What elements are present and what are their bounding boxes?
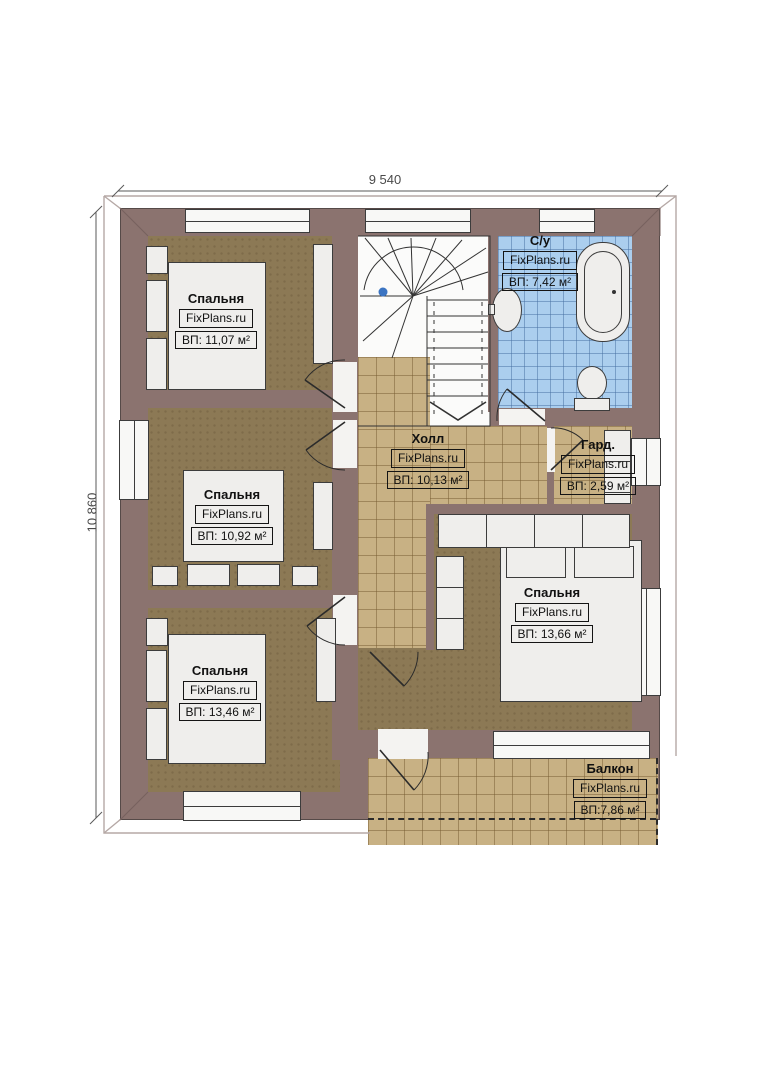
interior-wall	[426, 514, 434, 650]
room-label-bedroom-2: Спальня FixPlans.ru ВП: 10,92 м²	[176, 488, 288, 545]
room-area-label: ВП: 13,66 м²	[511, 625, 594, 643]
bathtub-drain-dot	[612, 290, 616, 294]
room-area-label: ВП: 11,07 м²	[175, 331, 257, 349]
door-opening-balcony	[378, 729, 428, 759]
interior-wall	[426, 504, 648, 514]
door-opening	[499, 409, 545, 425]
room-label-bathroom: С/у FixPlans.ru ВП: 7,42 м²	[492, 234, 588, 291]
window	[119, 420, 149, 500]
window	[493, 731, 650, 759]
pillow-symbol	[237, 564, 280, 586]
nightstand-symbol	[146, 618, 168, 646]
room-label-bedroom-3: Спальня FixPlans.ru ВП: 13,46 м²	[164, 664, 276, 721]
toilet-bowl-symbol	[577, 366, 607, 400]
room-name: С/у	[530, 234, 550, 248]
wardrobe-symbol	[316, 618, 336, 702]
room-name: Холл	[412, 432, 445, 446]
room-label-wardrobe: Гард. FixPlans.ru ВП: 2,59 м²	[546, 438, 650, 495]
room-area-label: ВП: 7,42 м²	[502, 273, 578, 291]
room-name: Гард.	[581, 438, 615, 452]
nightstand-symbol	[152, 566, 178, 586]
pillow-symbol	[187, 564, 230, 586]
room-label-hall: Холл FixPlans.ru ВП: 10,13 м²	[372, 432, 484, 489]
wardrobe-symbol	[313, 482, 333, 550]
wardrobe-symbol	[313, 244, 333, 364]
watermark-label: FixPlans.ru	[195, 505, 269, 523]
interior-wall	[148, 390, 332, 408]
nightstand-symbol	[146, 246, 168, 274]
toilet-tank-symbol	[574, 398, 610, 411]
room-label-bedroom-4: Спальня FixPlans.ru ВП: 13,66 м²	[496, 586, 608, 643]
nightstand-symbol	[292, 566, 318, 586]
watermark-label: FixPlans.ru	[503, 251, 577, 269]
floor-plan-canvas: 9 540 10 860	[0, 0, 763, 1080]
room-label-balcony: Балкон FixPlans.ru ВП:7,86 м²	[558, 762, 662, 819]
room-area-label: ВП: 2,59 м²	[560, 477, 636, 495]
room-label-bedroom-1: Спальня FixPlans.ru ВП: 11,07 м²	[160, 292, 272, 349]
room-name: Спальня	[192, 664, 248, 678]
window	[539, 209, 595, 233]
pillow-symbol	[506, 546, 566, 578]
door-opening	[333, 595, 357, 645]
pillow-symbol	[574, 546, 634, 578]
watermark-label: FixPlans.ru	[561, 455, 635, 473]
room-area-label: ВП: 13,46 м²	[179, 703, 262, 721]
door-opening	[333, 362, 357, 412]
room-name: Спальня	[188, 292, 244, 306]
dimension-top-label: 9 540	[330, 172, 440, 187]
room-name: Спальня	[524, 586, 580, 600]
sink-tap	[488, 304, 495, 315]
window	[365, 209, 471, 233]
bathtub-inner	[584, 251, 622, 333]
room-area-label: ВП: 10,13 м²	[387, 471, 470, 489]
room-name: Спальня	[204, 488, 260, 502]
watermark-label: FixPlans.ru	[573, 779, 647, 797]
room-area-label: ВП:7,86 м²	[574, 801, 647, 819]
window	[183, 791, 301, 821]
watermark-label: FixPlans.ru	[179, 309, 253, 327]
room-area-label: ВП: 10,92 м²	[191, 527, 274, 545]
room-bedroom-4-floor-ext	[358, 648, 434, 730]
door-opening	[333, 420, 357, 468]
room-name: Балкон	[587, 762, 634, 776]
watermark-label: FixPlans.ru	[183, 681, 257, 699]
window	[185, 209, 310, 233]
interior-wall	[148, 590, 340, 608]
room-hall-floor	[358, 357, 430, 648]
dimension-left-label: 10 860	[85, 473, 100, 553]
wardrobe-row-symbol	[438, 514, 630, 548]
watermark-label: FixPlans.ru	[515, 603, 589, 621]
watermark-label: FixPlans.ru	[391, 449, 465, 467]
sink-symbol	[492, 288, 522, 332]
wardrobe-column-symbol	[436, 556, 464, 650]
